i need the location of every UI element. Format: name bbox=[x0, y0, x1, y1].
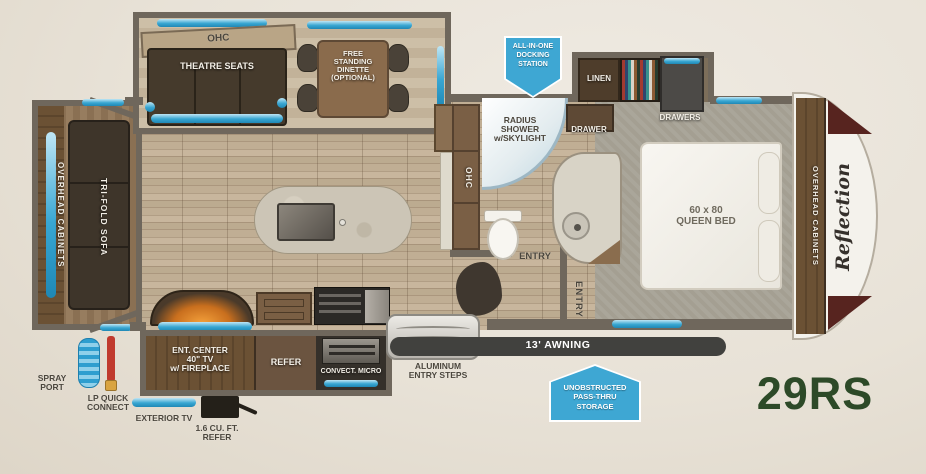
entry-label-main: ENTRY bbox=[570, 274, 583, 324]
steps-line: ENTRY STEPS bbox=[392, 371, 484, 380]
accent-strip bbox=[324, 380, 378, 387]
window-strip bbox=[437, 46, 444, 108]
spray-line: PORT bbox=[26, 383, 78, 392]
island-sink bbox=[277, 203, 335, 241]
overhead-cabinets-right-label: OVERHEAD CABINETS bbox=[804, 106, 819, 326]
lp-quick-connect-icon bbox=[107, 336, 115, 382]
lp-line: CONNECT bbox=[76, 403, 140, 412]
theatre-seats: THEATRE SEATS bbox=[147, 48, 287, 126]
dinette-chair bbox=[387, 84, 409, 112]
shower-label: RADIUS SHOWER w/SKYLIGHT bbox=[484, 116, 556, 144]
grate bbox=[319, 302, 361, 305]
spray-port-icon bbox=[78, 338, 100, 388]
entry-door bbox=[456, 262, 502, 316]
pantry-ohc-label: OHC bbox=[459, 134, 473, 222]
passthru-line: PASS-THRU bbox=[549, 392, 641, 401]
refer-label: REFER bbox=[256, 358, 316, 368]
linen-label: LINEN bbox=[580, 75, 618, 84]
convect-micro-label: CONVECT. MICRO bbox=[312, 368, 390, 376]
mini-refer-label: 1.6 CU. FT. REFER bbox=[172, 424, 262, 442]
wardrobe bbox=[620, 58, 660, 102]
docking-line: DOCKING bbox=[504, 52, 562, 61]
kitchen-counter-drawers bbox=[256, 292, 312, 325]
passthru-line: STORAGE bbox=[549, 402, 641, 411]
passthru-storage-badge: UNOBSTRUCTED PASS-THRU STORAGE bbox=[549, 364, 641, 422]
dinette-chair bbox=[297, 84, 319, 112]
pantry-ohc: OHC bbox=[452, 104, 480, 250]
dinette-chair bbox=[297, 44, 319, 72]
mini-refer-line: REFER bbox=[172, 433, 262, 442]
lp-nozzle bbox=[105, 380, 117, 391]
linen-closet: LINEN bbox=[578, 58, 620, 102]
cupholder bbox=[277, 98, 287, 108]
kitchen-slide: ENT. CENTER 40" TV w/ FIREPLACE REFER CO… bbox=[140, 330, 392, 396]
brand-logo: Reflection bbox=[832, 132, 858, 302]
dresser-light-strip bbox=[664, 58, 700, 64]
ohc-label: OHC bbox=[143, 30, 294, 49]
exterior-tv-label: EXTERIOR TV bbox=[124, 414, 204, 423]
drawer-front bbox=[264, 312, 304, 320]
microwave bbox=[322, 338, 380, 364]
faucet bbox=[339, 219, 346, 226]
wall bbox=[707, 52, 714, 102]
kitchen-island bbox=[254, 186, 412, 254]
spray-port-label: SPRAY PORT bbox=[26, 374, 78, 392]
steps-label: ALUMINUM ENTRY STEPS bbox=[392, 362, 484, 380]
docking-line: ALL-IN-ONE bbox=[504, 43, 562, 52]
model-number: 29RS bbox=[720, 368, 910, 418]
dinette-chair bbox=[387, 44, 409, 72]
vent-slot bbox=[329, 345, 375, 348]
dresser-drawers bbox=[660, 56, 704, 112]
theatre-dinette-slide: OHC THEATRE SEATS FREE STANDING DINETTE … bbox=[133, 12, 451, 134]
trifold-sofa-label: TRI-FOLD SOFA bbox=[92, 130, 108, 304]
exterior-tv-strip bbox=[132, 398, 196, 407]
drain bbox=[574, 224, 581, 231]
passthru-badge-label: UNOBSTRUCTED PASS-THRU STORAGE bbox=[549, 383, 641, 411]
theatre-seats-label: THEATRE SEATS bbox=[149, 62, 285, 72]
bed-line: QUEEN BED bbox=[656, 217, 756, 228]
window-strip bbox=[307, 21, 412, 29]
ent-center: ENT. CENTER 40" TV w/ FIREPLACE bbox=[146, 336, 254, 390]
step-edge bbox=[396, 326, 470, 332]
window-strip bbox=[100, 324, 132, 331]
docking-badge-label: ALL-IN-ONE DOCKING STATION bbox=[504, 43, 562, 69]
dinette-table: FREE STANDING DINETTE (OPTIONAL) bbox=[317, 40, 389, 118]
vanity-cabinet bbox=[588, 240, 620, 264]
counter-cabinet bbox=[434, 104, 454, 152]
cap-accent-top bbox=[828, 100, 872, 134]
convect-micro: CONVECT. MICRO bbox=[316, 336, 386, 390]
wall bbox=[125, 97, 143, 105]
queen-bed-label: 60 x 80 QUEEN BED bbox=[656, 206, 756, 228]
mini-refer-icon bbox=[201, 396, 239, 418]
window-strip bbox=[82, 99, 124, 106]
refer: REFER bbox=[254, 336, 316, 390]
cupholder bbox=[145, 102, 155, 112]
pillow bbox=[758, 220, 780, 282]
drawer-label: DRAWER bbox=[556, 126, 622, 135]
drawer-front bbox=[264, 299, 304, 307]
ent-center-line: w/ FIREPLACE bbox=[146, 364, 254, 373]
grate bbox=[319, 310, 361, 313]
front-cap: OVERHEAD CABINETS Reflection bbox=[792, 92, 878, 340]
shower-line: w/SKYLIGHT bbox=[484, 134, 556, 143]
rear-slide: OVERHEAD CABINETS TRI-FOLD SOFA bbox=[32, 100, 142, 330]
lp-quick-connect-label: LP QUICK CONNECT bbox=[76, 394, 140, 412]
range-stove bbox=[314, 287, 390, 325]
fireplace bbox=[150, 290, 254, 326]
queen-bed: 60 x 80 QUEEN BED bbox=[640, 142, 782, 290]
window-strip bbox=[716, 97, 762, 104]
overhead-cabinets-left-label: OVERHEAD CABINETS bbox=[48, 116, 64, 314]
passthru-line: UNOBSTRUCTED bbox=[549, 383, 641, 392]
docking-station-badge: ALL-IN-ONE DOCKING STATION bbox=[504, 36, 562, 98]
oven bbox=[365, 290, 389, 323]
dinette-label: FREE STANDING DINETTE (OPTIONAL) bbox=[319, 50, 387, 82]
awning-bar: 13' AWNING bbox=[390, 337, 726, 356]
awning-label: 13' AWNING bbox=[390, 340, 726, 351]
dinette-line: (OPTIONAL) bbox=[319, 74, 387, 82]
entry-label-bath: ENTRY bbox=[512, 252, 558, 262]
vanity bbox=[552, 152, 622, 264]
vanity-sink bbox=[562, 212, 590, 240]
vent-slot bbox=[329, 352, 375, 355]
grate bbox=[319, 294, 361, 297]
pillow bbox=[758, 152, 780, 214]
trifold-sofa: TRI-FOLD SOFA bbox=[68, 120, 130, 310]
accent-light-strip bbox=[151, 114, 283, 123]
docking-line: STATION bbox=[504, 61, 562, 70]
wall bbox=[560, 244, 567, 322]
window-strip bbox=[612, 320, 682, 328]
ent-center-label: ENT. CENTER 40" TV w/ FIREPLACE bbox=[146, 346, 254, 374]
floor-plan: OVERHEAD CABINETS TRI-FOLD SOFA OHC THEA… bbox=[0, 0, 926, 474]
drawers-label: DRAWERS bbox=[650, 114, 710, 123]
